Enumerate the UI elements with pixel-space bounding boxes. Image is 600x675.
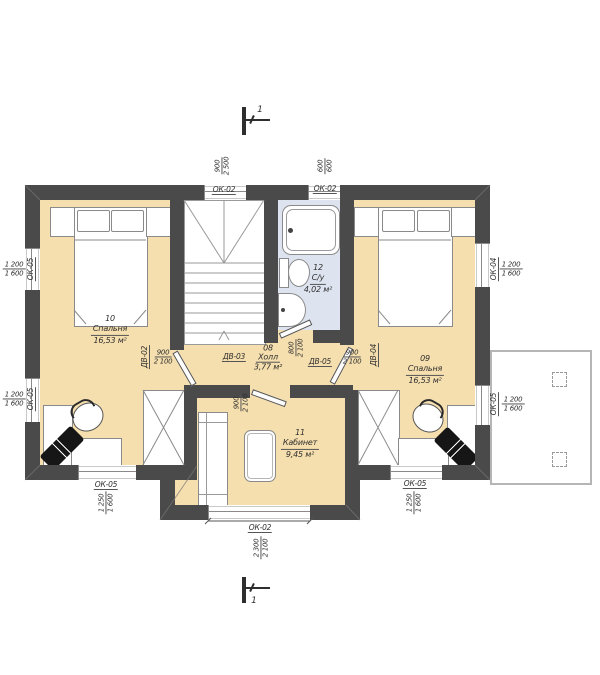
roof-hatch-icon (552, 372, 567, 387)
sofa (198, 412, 228, 506)
window-bottom-right (390, 465, 444, 480)
room-area: 16,53 м² (93, 336, 126, 346)
wall (290, 385, 353, 398)
window-right-upper (475, 243, 490, 289)
wall (313, 330, 340, 343)
wall (310, 505, 360, 520)
pillow (417, 210, 450, 232)
wall (340, 200, 354, 345)
stairwell (184, 200, 266, 345)
room-number: 08 (263, 344, 273, 353)
wall (475, 287, 490, 385)
wall (184, 390, 197, 480)
pillow (77, 210, 110, 232)
room-name: Холл (256, 353, 280, 363)
pillow (382, 210, 415, 232)
wall (170, 200, 184, 350)
wardrobe (358, 390, 400, 467)
room-number: 11 (295, 428, 305, 438)
section-mark-bottom (242, 577, 246, 603)
wall (264, 200, 278, 343)
wall (442, 465, 490, 480)
wall (475, 185, 490, 243)
section-mark-top (242, 107, 246, 135)
window-bottom-center (208, 505, 312, 520)
room-number: 12 (313, 263, 323, 273)
wall (340, 185, 490, 200)
wall (25, 290, 40, 378)
room-area: 9,45 м² (286, 450, 314, 460)
nightstand (50, 207, 76, 237)
floor-plan: 1 1 10 Спальня 16,53 м² 09 Спальня 16,53… (0, 0, 600, 675)
room-name: Кабинет (281, 438, 319, 449)
window-bottom-left (78, 465, 138, 480)
room-name: С/у (310, 273, 326, 284)
room-number: 10 (105, 314, 115, 324)
wardrobe (143, 390, 186, 467)
room-area: 16,53 м² (408, 376, 441, 386)
room-name: Спальня (406, 364, 444, 375)
table (244, 430, 276, 482)
nightstand (451, 207, 477, 237)
roof-hatch-icon (552, 452, 567, 467)
room-area: 3,77 м² (254, 363, 282, 372)
wall (246, 185, 308, 200)
terrace-roof (490, 350, 592, 485)
pillow (111, 210, 144, 232)
room-area: 4,02 м² (304, 285, 332, 295)
wall (160, 505, 208, 520)
room-number: 09 (420, 354, 430, 364)
wall (25, 185, 40, 248)
window-right-lower (475, 385, 490, 427)
wall (25, 185, 204, 200)
bathtub (282, 205, 340, 255)
wall (345, 390, 358, 480)
wall (25, 465, 78, 480)
nightstand (354, 207, 380, 237)
room-name: Спальня (91, 324, 129, 335)
